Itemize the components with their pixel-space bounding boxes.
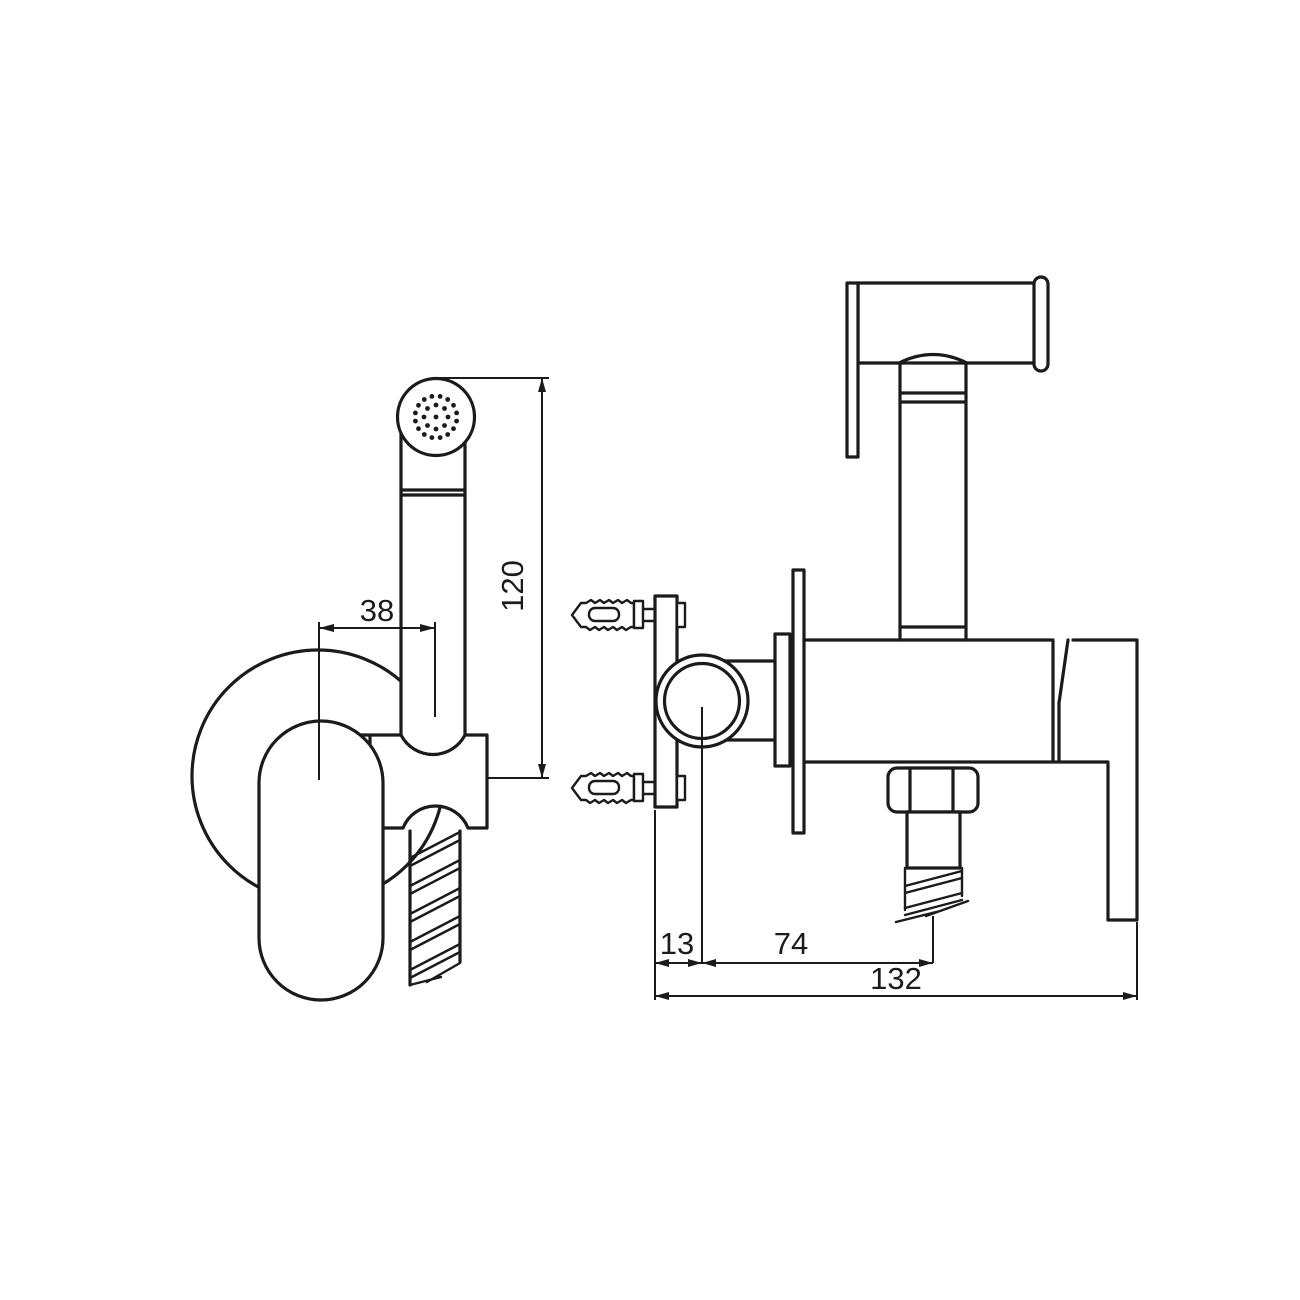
front-view: 38 120	[192, 378, 549, 1000]
handset-shaft	[401, 425, 465, 755]
grip-oval	[259, 721, 383, 1000]
side-view: 13 74 132	[572, 277, 1137, 1000]
escutcheon-flange	[793, 570, 804, 833]
bidet-shower-drawing: 38 120	[0, 0, 1300, 1300]
spray-head-side	[858, 283, 1038, 363]
dimension-13-label: 13	[660, 926, 694, 961]
outlet-nut	[888, 768, 978, 812]
handset-neck	[900, 363, 966, 640]
outlet-thread	[896, 868, 968, 922]
valve-body	[804, 640, 1108, 762]
outlet-cylinder	[907, 812, 960, 868]
mounting-collar	[775, 634, 790, 766]
wall-plate-boss-top	[677, 603, 685, 627]
hose-spiral-hatch	[410, 832, 460, 978]
dimension-120-label: 120	[495, 560, 530, 612]
wall-plate-boss-bottom	[677, 776, 685, 800]
spray-head-end-cap	[1034, 277, 1048, 371]
shower-hose	[410, 831, 460, 985]
dimension-132-label: 132	[870, 961, 922, 996]
lever-handle	[1073, 640, 1137, 920]
wall-anchor-bottom	[572, 773, 656, 803]
technical-drawing-canvas: 38 120	[0, 0, 1300, 1300]
handset-side	[847, 277, 1048, 640]
spray-face-plate	[847, 283, 858, 457]
dimension-74-label: 74	[774, 926, 808, 961]
dimension-13-74-132: 13 74 132	[655, 707, 1137, 1000]
dimension-38-label: 38	[360, 593, 394, 628]
wall-anchor-top	[572, 600, 656, 630]
